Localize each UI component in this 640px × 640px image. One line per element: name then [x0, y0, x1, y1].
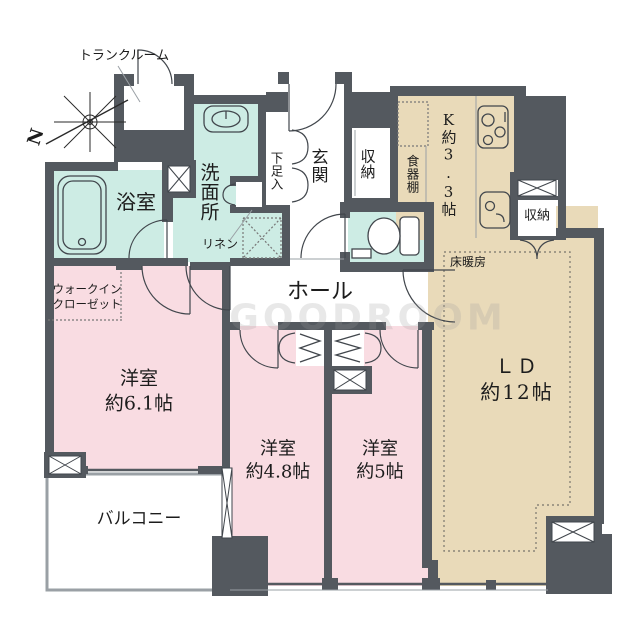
linen-label: リネン	[202, 237, 238, 253]
shaft-bedroom-6-1	[49, 456, 81, 474]
pillar-bottom-left	[212, 536, 268, 596]
trunk-room	[124, 86, 184, 130]
cupboard-label: 食器棚	[403, 154, 422, 193]
bedroom-5-label-line1: 洋室	[356, 438, 403, 461]
wic-label-line2: クローゼット	[53, 297, 122, 312]
trunk-room-label: トランクルーム	[79, 49, 169, 66]
shaft-ld-corner	[552, 522, 594, 542]
wall-block-top-right	[514, 96, 566, 176]
entrance-door	[289, 84, 336, 131]
bedroom-6-1-label: 洋室 約6.1帖	[105, 366, 173, 415]
window-slit-bedroom-4-8	[222, 468, 232, 538]
balcony-area	[47, 474, 227, 590]
ld-label-line1: ＬＤ	[480, 353, 553, 379]
watermark: GOODROOM	[229, 298, 506, 339]
outer-wall-right	[594, 238, 604, 524]
balcony-label: バルコニー	[97, 508, 182, 530]
outer-wall-left	[45, 162, 54, 476]
bedroom-5-label: 洋室 約5帖	[356, 438, 403, 485]
bathroom-floor	[54, 170, 164, 260]
bedroom-6-1-label-line1: 洋室	[105, 366, 173, 391]
floor-heating-label: 床暖房	[450, 255, 486, 271]
shoe-cabinet-label: 下足入	[267, 151, 286, 190]
kitchen-label: K約3.3帖	[439, 111, 460, 218]
bedroom-4-8-label-line1: 洋室	[246, 438, 311, 461]
bedroom-6-1-label-line2: 約6.1帖	[105, 391, 173, 416]
entrance-storage-label: 収納	[358, 148, 379, 180]
washroom-label: 洗面所	[196, 162, 223, 222]
ld-label-line2: 約12帖	[480, 379, 553, 405]
shaft-bedroom-divider	[334, 370, 366, 390]
trunk-door-opening	[134, 74, 174, 86]
walk-in-closet-label: ウォークイン クローゼット	[53, 282, 122, 312]
hall-label: ホール	[287, 279, 353, 308]
floor-plan: GOODROOM トランクルーム N 浴室 洗面所 リネン 下足入 玄関 収納 …	[0, 0, 640, 640]
wic-label-line1: ウォークイン	[53, 282, 122, 297]
bedroom-5-label-line2: 約5帖	[356, 461, 403, 484]
bedroom-4-8-label: 洋室 約4.8帖	[246, 438, 311, 485]
linen-closet-space	[236, 182, 262, 207]
shaft-washroom	[168, 166, 190, 192]
shaft-kitchen-right	[518, 180, 556, 196]
living-dining-label: ＬＤ 約12帖	[480, 353, 553, 405]
bathroom-label: 浴室	[116, 189, 156, 215]
pillar-bottom-right	[546, 544, 612, 594]
ld-storage-label: 収納	[524, 209, 550, 226]
toilet-door	[301, 214, 345, 258]
bedroom-4-8-label-line2: 約4.8帖	[246, 461, 311, 484]
entrance-label: 玄関	[306, 148, 331, 184]
